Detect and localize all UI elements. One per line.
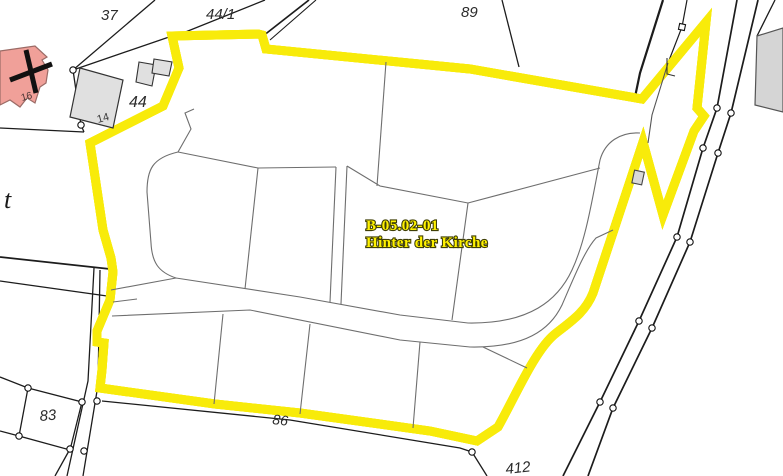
survey-point — [597, 399, 603, 405]
parcel-label-44: 44 — [129, 94, 147, 111]
survey-point — [610, 405, 616, 411]
survey-point — [728, 110, 734, 116]
street-label-t: t — [4, 185, 12, 214]
survey-point — [636, 318, 642, 324]
corner-parcel — [755, 28, 783, 112]
cadastral-map-canvas[interactable]: 37 44/1 89 44 83 86 412 14 16 t B-05.02-… — [0, 0, 783, 476]
survey-point — [25, 385, 31, 391]
survey-point — [649, 325, 655, 331]
survey-point — [674, 234, 680, 240]
survey-point — [94, 398, 100, 404]
outbuilding — [152, 59, 172, 76]
survey-point — [714, 105, 720, 111]
survey-point — [700, 145, 706, 151]
parcel-label-412: 412 — [505, 458, 532, 476]
survey-point — [67, 446, 73, 452]
plan-name-label: Hinter der Kirche — [366, 235, 488, 251]
parcel-label-83: 83 — [39, 407, 58, 425]
survey-point — [78, 122, 84, 128]
survey-point — [715, 150, 721, 156]
parcel-label-86: 86 — [272, 411, 289, 429]
parcel-label-44-1: 44/1 — [206, 6, 235, 23]
parcel-label-89: 89 — [461, 4, 478, 21]
survey-point — [79, 399, 85, 405]
survey-point — [70, 67, 76, 73]
plan-code-label: B-05.02-01 — [366, 218, 439, 234]
survey-point — [81, 448, 87, 454]
survey-point — [687, 239, 693, 245]
survey-point-square — [678, 23, 685, 30]
parcel-label-37: 37 — [101, 7, 118, 24]
shed — [632, 170, 644, 185]
survey-point — [16, 433, 22, 439]
survey-point — [469, 449, 475, 455]
